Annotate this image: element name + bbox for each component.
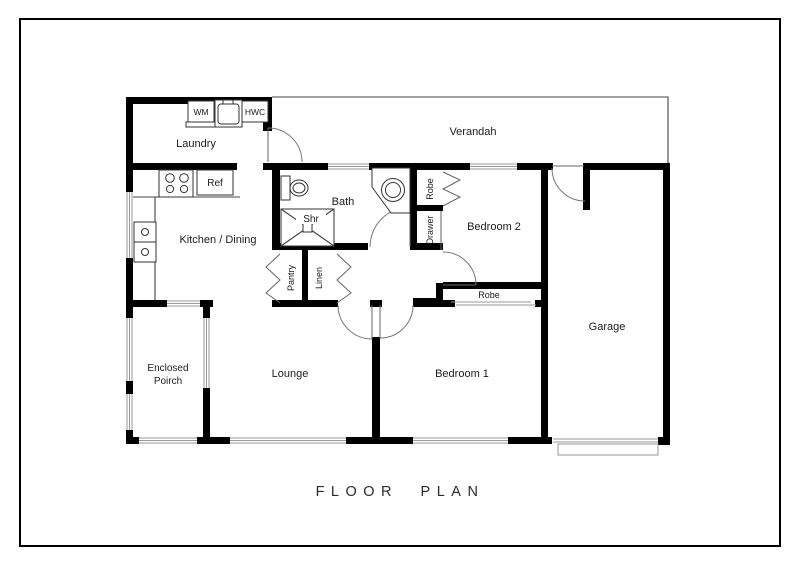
room-label-lounge: Lounge xyxy=(272,368,309,380)
sliding-door-robe-bedroom1 xyxy=(451,302,536,305)
door-arc-laundry-verandah xyxy=(268,128,302,162)
garage-door xyxy=(553,439,658,455)
fixture-label-robe-bedroom1: Robe xyxy=(478,290,500,300)
room-label-bedroom2: Bedroom 2 xyxy=(467,221,521,233)
window-kitchen-west xyxy=(127,192,132,258)
window-porch-south xyxy=(139,438,197,443)
window-lounge-south xyxy=(230,438,346,443)
door-arc-bedroom1 xyxy=(380,305,413,338)
floor-plan-page: Laundry Verandah Kitchen / Dining Bath B… xyxy=(0,0,800,565)
stove-icon xyxy=(159,170,193,197)
room-label-garage: Garage xyxy=(589,321,626,333)
fixture-label-robe-bedroom2: Robe xyxy=(425,178,435,200)
bifold-pantry xyxy=(266,254,280,303)
fixture-label-hwc: HWC xyxy=(245,107,265,117)
window-bedroom2-north xyxy=(470,164,517,169)
page-title: FLOOR PLAN xyxy=(316,484,485,500)
fixture-label-drawer: Drawer xyxy=(425,215,435,244)
room-label-kitchen-dining: Kitchen / Dining xyxy=(179,234,256,246)
door-arc-verandah-garage xyxy=(552,168,585,201)
fixture-label-pantry: Pantry xyxy=(286,264,296,291)
window-porch-top xyxy=(167,301,200,306)
window-porch-east xyxy=(204,318,209,388)
window-porch-west-lower xyxy=(127,394,132,430)
toilet-icon xyxy=(281,176,290,200)
bifold-robe-bedroom2 xyxy=(443,172,460,206)
room-label-laundry: Laundry xyxy=(176,138,216,150)
floor-plan-drawing: Laundry Verandah Kitchen / Dining Bath B… xyxy=(0,0,800,565)
fixture-label-wm: WM xyxy=(193,107,208,117)
room-label-enclosed-porch-line2: Poirch xyxy=(154,376,182,387)
room-label-enclosed-porch-line1: Enclosed xyxy=(147,363,188,374)
room-label-verandah: Verandah xyxy=(449,126,496,138)
fixture-label-shr: Shr xyxy=(303,214,319,225)
room-label-bedroom1: Bedroom 1 xyxy=(435,368,489,380)
window-bedroom1-south xyxy=(413,438,508,443)
room-label-bath: Bath xyxy=(332,196,355,208)
fixture-label-linen: Linen xyxy=(314,267,324,289)
door-arc-bedroom2 xyxy=(443,252,476,285)
door-arc-lounge xyxy=(338,305,372,339)
window-bath-north xyxy=(328,164,369,169)
bifold-linen xyxy=(337,254,351,303)
fixture-label-ref: Ref xyxy=(207,178,223,189)
window-porch-west-upper xyxy=(127,318,132,381)
